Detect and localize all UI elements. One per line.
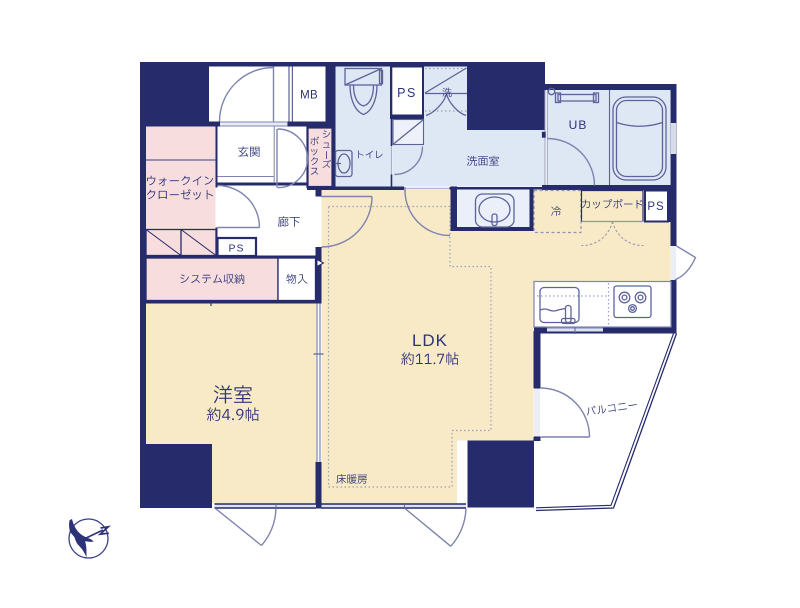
svg-text:LDK: LDK (412, 331, 448, 350)
svg-text:PS: PS (647, 201, 664, 213)
svg-text:UB: UB (569, 118, 588, 132)
svg-text:PS: PS (397, 86, 417, 100)
svg-text:MB: MB (300, 90, 318, 102)
svg-text:PS: PS (228, 243, 244, 255)
